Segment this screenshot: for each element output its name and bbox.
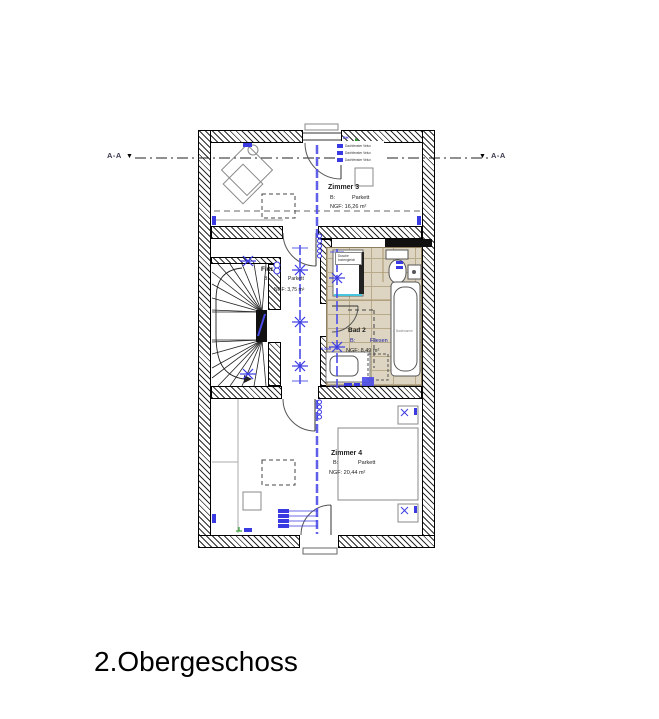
- legend-text: Dachfenster Velux: [345, 151, 371, 155]
- window-legend-row: Dachfenster Velux: [337, 143, 384, 148]
- legend-swatch-icon: [337, 151, 343, 155]
- zimmer3-dashed-furniture: [262, 194, 295, 218]
- window-legend-row: Dachfenster Velux: [337, 150, 384, 155]
- room-floor-key-flur: B:: [264, 277, 269, 282]
- radiator-blue: [362, 377, 374, 386]
- washer-dashed: [368, 354, 388, 380]
- room-floor-bad2: Fliesen: [370, 339, 388, 345]
- room-area-zimmer4: NGF: 20,44 m²: [329, 471, 365, 477]
- room-floor-zimmer3: Parkett: [352, 196, 369, 202]
- room-area-flur: NGF: 3,75 m²: [274, 288, 304, 293]
- window-legend-row: Dachfenster Velux: [337, 158, 384, 163]
- room-floor-key-zimmer3: B:: [330, 196, 335, 202]
- legend-swatch-icon: [337, 144, 343, 148]
- green-marker-icon: [236, 527, 242, 531]
- door-zimmer4: [283, 399, 315, 431]
- section-label-left: A-A: [107, 152, 122, 160]
- room-floor-zimmer4: Parkett: [358, 461, 375, 467]
- floorplan-graphics: [0, 0, 659, 719]
- legend-header: PH: [343, 136, 349, 140]
- window-legend-box: Dachfenster Velux Dachfenster Velux Dach…: [337, 141, 384, 165]
- section-label-right: A-A: [491, 152, 506, 160]
- junction-dots: [274, 234, 322, 419]
- room-label-zimmer3: Zimmer 3: [328, 184, 359, 191]
- section-triangle-right: ▼: [479, 153, 486, 160]
- room-floor-key-zimmer4: B:: [333, 461, 338, 467]
- section-triangle-left: ▼: [126, 153, 133, 160]
- zimmer4-dashed-furniture: [262, 460, 295, 485]
- legend-text: Dachfenster Velux: [345, 144, 371, 148]
- level-note: 0,000: [321, 347, 331, 351]
- door-bottom: [301, 505, 337, 554]
- legend-text: Dachfenster Velux: [345, 158, 371, 162]
- room-label-bad2: Bad 2: [348, 328, 366, 335]
- shower-note-line2: bodengleich: [338, 258, 359, 262]
- room-label-flur: Flur: [261, 267, 273, 274]
- room-floor-key-bad2: B:: [350, 339, 355, 345]
- room-area-zimmer3: NGF: 16,26 m²: [330, 205, 366, 211]
- room-floor-flur: Parkett: [288, 277, 304, 282]
- bathtub-note: Badewanne: [396, 330, 413, 333]
- room-area-bad2: NGF: 8,49 m²: [346, 349, 379, 355]
- room-label-zimmer4: Zimmer 4: [331, 450, 362, 457]
- top-window: [303, 124, 341, 179]
- shower-note-box: Dusche bodengleich: [335, 252, 362, 265]
- wall-box: [408, 265, 421, 279]
- legend-swatch-icon: [337, 158, 343, 162]
- floor-title: 2.Obergeschoss: [94, 648, 298, 676]
- floorplan-page: A-A ▼ ▼ A-A Zimmer 3 B: Parkett NGF: 16,…: [0, 0, 659, 719]
- switch-block: [278, 509, 289, 528]
